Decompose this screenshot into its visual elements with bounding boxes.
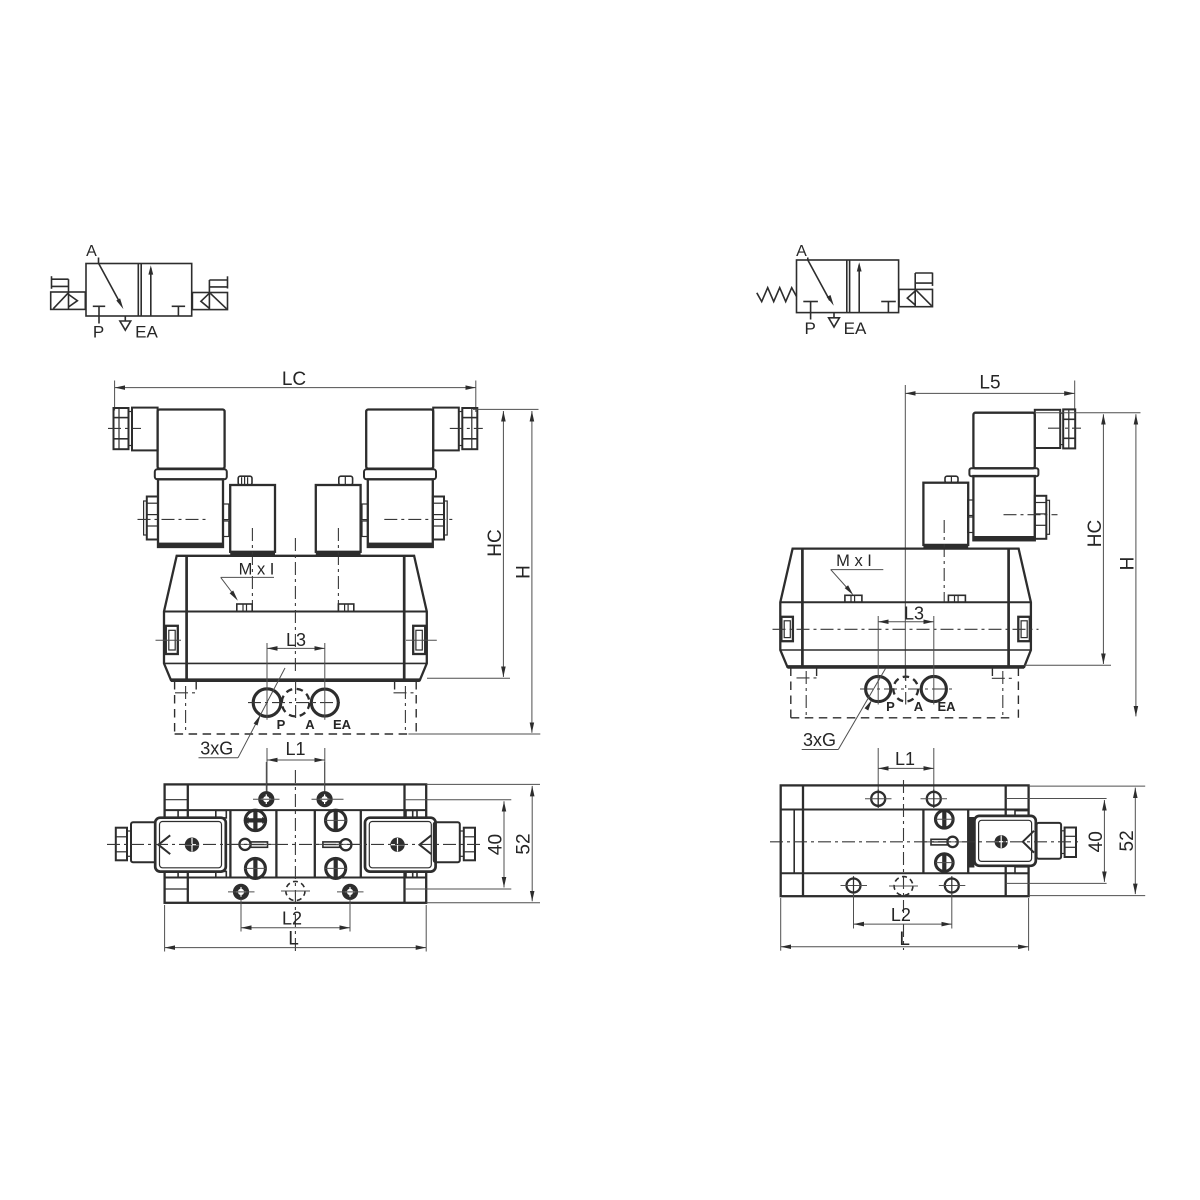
svg-text:L3: L3 — [286, 630, 306, 650]
svg-text:P: P — [805, 319, 816, 338]
svg-text:H: H — [514, 565, 535, 579]
svg-text:3xG: 3xG — [803, 730, 836, 750]
svg-text:3xG: 3xG — [200, 739, 233, 759]
svg-text:H: H — [1118, 557, 1139, 571]
svg-text:A: A — [914, 699, 924, 714]
svg-text:HC: HC — [485, 529, 506, 556]
svg-text:L2: L2 — [891, 905, 911, 925]
svg-text:L3: L3 — [904, 603, 924, 623]
svg-text:40: 40 — [1086, 831, 1107, 852]
svg-text:A: A — [796, 243, 807, 260]
svg-text:L5: L5 — [979, 373, 1000, 394]
svg-text:HC: HC — [1085, 520, 1106, 547]
svg-text:EA: EA — [937, 699, 956, 714]
svg-text:EA: EA — [333, 717, 352, 732]
svg-text:M x I: M x I — [239, 561, 275, 579]
svg-text:P: P — [277, 717, 286, 732]
svg-text:52: 52 — [1117, 830, 1138, 851]
svg-text:LC: LC — [282, 369, 306, 390]
svg-text:EA: EA — [135, 323, 158, 342]
svg-text:L: L — [899, 929, 910, 950]
svg-text:P: P — [886, 699, 895, 714]
svg-text:L2: L2 — [282, 909, 302, 929]
svg-text:A: A — [305, 717, 315, 732]
svg-text:40: 40 — [486, 834, 507, 855]
svg-text:A: A — [86, 243, 97, 260]
svg-text:P: P — [93, 323, 104, 342]
svg-text:L1: L1 — [895, 749, 915, 769]
svg-text:L1: L1 — [285, 739, 305, 759]
svg-text:M x I: M x I — [836, 552, 872, 570]
svg-text:L: L — [288, 929, 299, 950]
svg-text:EA: EA — [844, 319, 867, 338]
svg-text:52: 52 — [514, 833, 535, 854]
